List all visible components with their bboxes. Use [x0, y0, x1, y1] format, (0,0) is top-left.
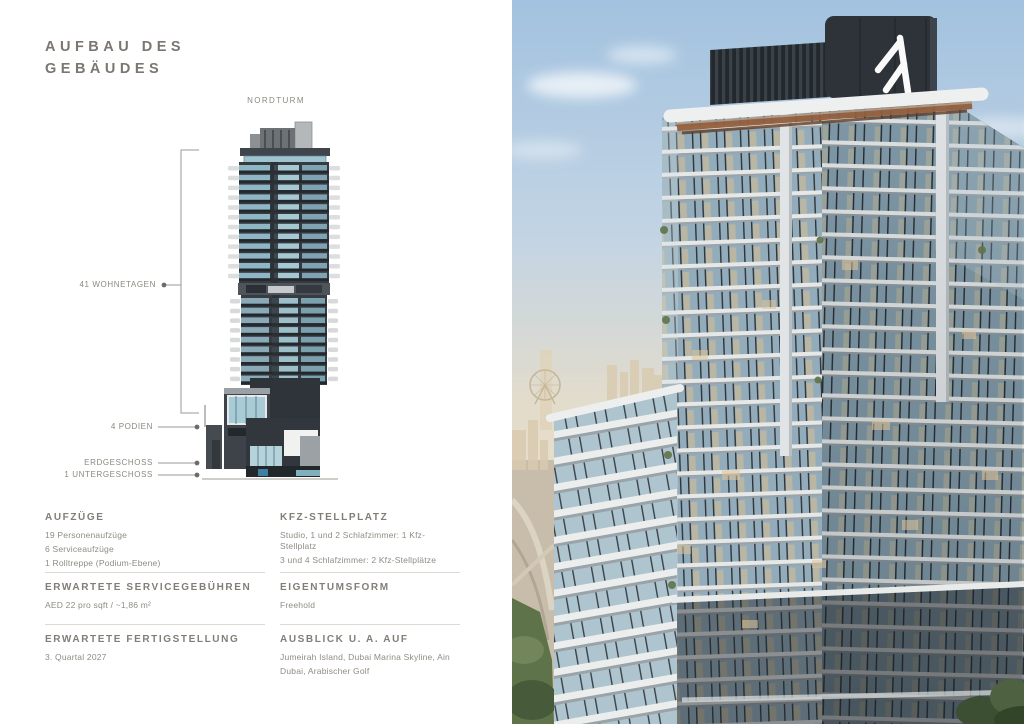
tower-label: NORDTURM [210, 96, 342, 105]
building-photo [512, 0, 1024, 724]
fact-line: 3. Quartal 2027 [45, 652, 265, 663]
brochure-page: AUFBAU DES GEBÄUDES [0, 0, 1024, 724]
annotation-podien: 4 PODIEN [40, 422, 153, 431]
annotation-wohnetagen: 41 WOHNETAGEN [40, 280, 156, 289]
fact-line: Jumeirah Island, Dubai Marina Skyline, A… [280, 652, 460, 663]
fact-heading: AUSBLICK U. A. AUF [280, 634, 460, 645]
fact-line: 19 Personenaufzüge [45, 530, 265, 541]
fact-line: 3 und 4 Schlafzimmer: 2 Kfz-Stellplätze [280, 555, 460, 566]
fact-fertigstellung: ERWARTETE FERTIGSTELLUNG 3. Quartal 2027 [45, 625, 265, 666]
fact-line: 1 Rolltreppe (Podium-Ebene) [45, 558, 265, 569]
facts-column-left: AUFZÜGE 19 Personenaufzüge 6 Serviceaufz… [45, 503, 265, 680]
tower-lower-block [230, 295, 338, 385]
fact-heading: ERWARTETE SERVICEGEBÜHREN [45, 582, 265, 593]
info-panel: AUFBAU DES GEBÄUDES [0, 0, 512, 724]
fact-heading: EIGENTUMSFORM [280, 582, 460, 593]
tower-upper-block [228, 162, 340, 283]
annotation-erdgeschoss: ERDGESCHOSS [40, 458, 153, 467]
fact-line: 6 Serviceaufzüge [45, 544, 265, 555]
fact-eigentumsform: EIGENTUMSFORM Freehold [280, 573, 460, 625]
annotation-lines [158, 150, 199, 475]
fact-line: Dubai, Arabischer Golf [280, 666, 460, 677]
fact-heading: KFZ-STELLPLATZ [280, 512, 460, 523]
tower-mid-band [238, 283, 330, 295]
facts-grid: AUFZÜGE 19 Personenaufzüge 6 Serviceaufz… [45, 503, 460, 680]
annotation-untergeschoss: 1 UNTERGESCHOSS [30, 470, 153, 479]
fact-ausblick: AUSBLICK U. A. AUF Jumeirah Island, Duba… [280, 625, 460, 680]
fact-stellplatz: KFZ-STELLPLATZ Studio, 1 und 2 Schlafzim… [280, 503, 460, 573]
building-render [512, 0, 1024, 724]
left-wing [550, 388, 680, 724]
tower-roof [240, 122, 330, 164]
fact-line: Studio, 1 und 2 Schlafzimmer: 1 Kfz-Stel… [280, 530, 460, 551]
fact-aufzuege: AUFZÜGE 19 Personenaufzüge 6 Serviceaufz… [45, 503, 265, 573]
fact-line: Freehold [280, 600, 460, 611]
fact-servicegebuehren: ERWARTETE SERVICEGEBÜHREN AED 22 pro sqf… [45, 573, 265, 625]
facts-column-right: KFZ-STELLPLATZ Studio, 1 und 2 Schlafzim… [280, 503, 460, 680]
tower-podium [205, 378, 320, 477]
fact-heading: ERWARTETE FERTIGSTELLUNG [45, 634, 265, 645]
fact-line: AED 22 pro sqft / ~1,86 m² [45, 600, 265, 611]
fact-heading: AUFZÜGE [45, 512, 265, 523]
